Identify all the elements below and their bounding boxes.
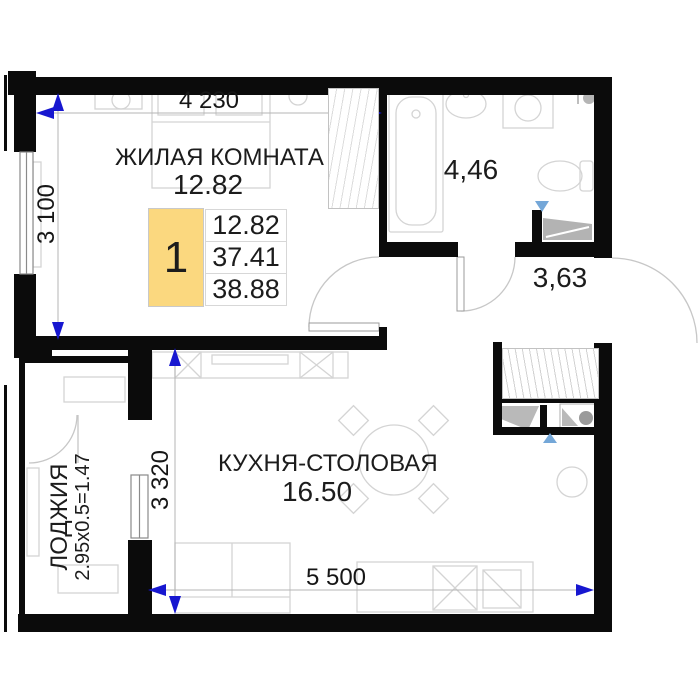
bathroom-area: 4,46: [421, 155, 521, 185]
apartment-rooms-count: 1: [164, 233, 188, 283]
wall-left-upper: [14, 95, 36, 152]
floor-plan: ЖИЛАЯ КОМНАТА 12.82 1 12.82 37.41 38.88 …: [0, 0, 700, 700]
loggia-radiator: [27, 468, 39, 556]
side-table: [557, 467, 587, 497]
bathroom-door-arc: [461, 257, 515, 311]
info-value-area: 37.41: [205, 241, 287, 274]
wall-storage-left: [493, 342, 502, 435]
entrance-door-arc: [612, 258, 697, 343]
washing-machine: [503, 91, 553, 128]
living-wardrobe-hatch: [328, 88, 379, 209]
wall-left-lower: [14, 274, 36, 338]
sofa: [175, 543, 290, 613]
living-door-leaf: [309, 323, 379, 331]
living-door-arc: [309, 257, 379, 327]
kitchen-counter: [152, 352, 348, 378]
hall-area: 3,63: [510, 263, 610, 293]
living-room-name: ЖИЛАЯ КОМНАТА: [115, 145, 315, 171]
kitchen-area: 16.50: [267, 477, 367, 507]
hall-wardrobe-hatch: [502, 348, 599, 399]
wall-right-upper: [594, 95, 612, 258]
living-room-area: 12.82: [138, 170, 278, 200]
loggia-name: ЛОДЖИЯ: [47, 434, 73, 600]
loggia-bench: [64, 377, 125, 402]
dimension-bottom: 5 500: [276, 565, 396, 591]
dimension-left: 3 100: [34, 154, 60, 274]
wall-top: [14, 77, 612, 95]
wall-loggia-top: [19, 356, 128, 363]
wall-living-bottom: [36, 336, 387, 350]
wall-living-bath: [379, 95, 387, 257]
hall-cabinet-knob: [579, 411, 593, 425]
toilet: [538, 161, 593, 191]
loggia-formula: 2.95x0.5=1.47: [73, 434, 95, 600]
wall-bath-bottom-right: [515, 242, 612, 257]
bathroom-door-leaf: [457, 257, 464, 311]
kitchen-name: КУХНЯ-СТОЛОВАЯ: [218, 451, 418, 477]
dimension-top: 4 230: [149, 88, 269, 114]
apartment-number-box: 1: [148, 208, 204, 307]
wall-bath-bottom-left: [387, 242, 458, 257]
dimension-kitchen-left: 3 320: [148, 420, 174, 540]
wall-loggia-partition-bottom: [128, 540, 152, 616]
info-value-total: 38.88: [205, 273, 287, 306]
info-value-living: 12.82: [205, 209, 287, 242]
wall-loggia-partition-top: [128, 336, 152, 420]
wall-bottom: [18, 614, 612, 632]
hall-shelf: [501, 406, 539, 430]
wall-loggia-left: [19, 356, 25, 614]
loggia-label: ЛОДЖИЯ 2.95x0.5=1.47: [47, 434, 103, 600]
